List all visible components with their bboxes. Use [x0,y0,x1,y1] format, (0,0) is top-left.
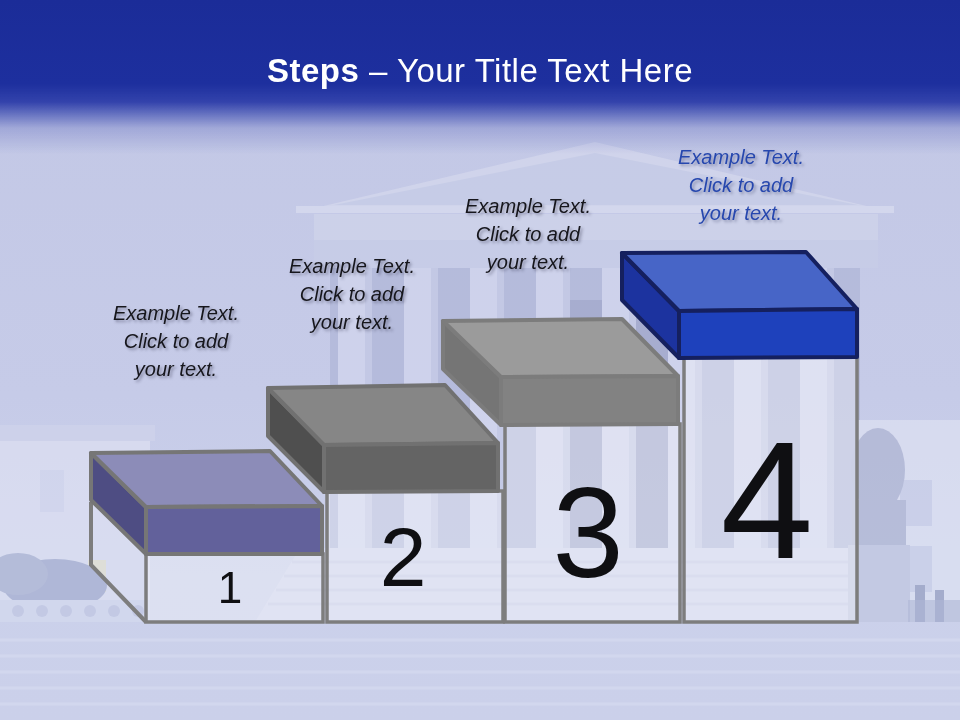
caption-line: Click to add [418,220,638,248]
caption-line: your text. [66,355,286,383]
caption-line: Example Text. [418,192,638,220]
slab-front-face [501,376,678,425]
caption-line: your text. [631,199,851,227]
caption-step-4[interactable]: Example Text. Click to add your text. [631,143,851,227]
step-number: 3 [552,461,623,604]
slab-front-face [324,443,498,492]
slide: Steps – Your Title Text Here 1 2 [0,0,960,720]
caption-line: your text. [242,308,462,336]
slab-front-face [146,506,322,554]
caption-line: Click to add [242,280,462,308]
step-number: 4 [721,407,814,593]
caption-line: your text. [418,248,638,276]
step-number: 2 [380,510,427,604]
caption-step-3[interactable]: Example Text. Click to add your text. [418,192,638,276]
caption-line: Example Text. [631,143,851,171]
step-1: 1 [91,451,323,622]
caption-line: Click to add [631,171,851,199]
step-number: 1 [218,563,242,612]
slab-front-face [679,309,857,358]
